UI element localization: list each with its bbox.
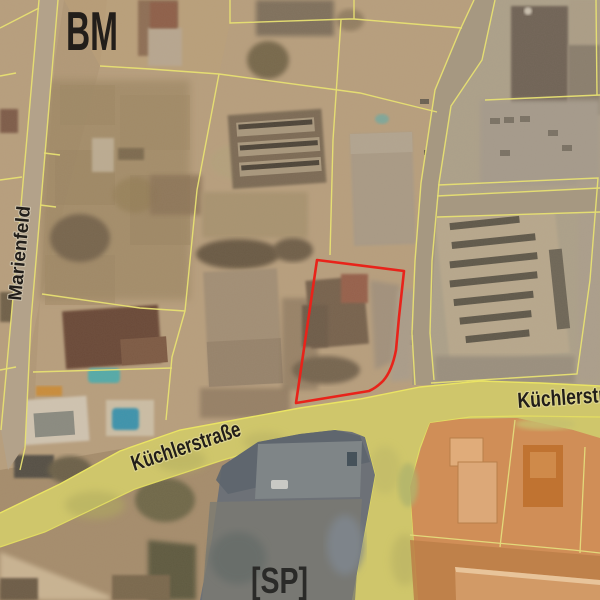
- svg-text:[SP]: [SP]: [251, 560, 308, 600]
- svg-text:BM: BM: [66, 0, 118, 62]
